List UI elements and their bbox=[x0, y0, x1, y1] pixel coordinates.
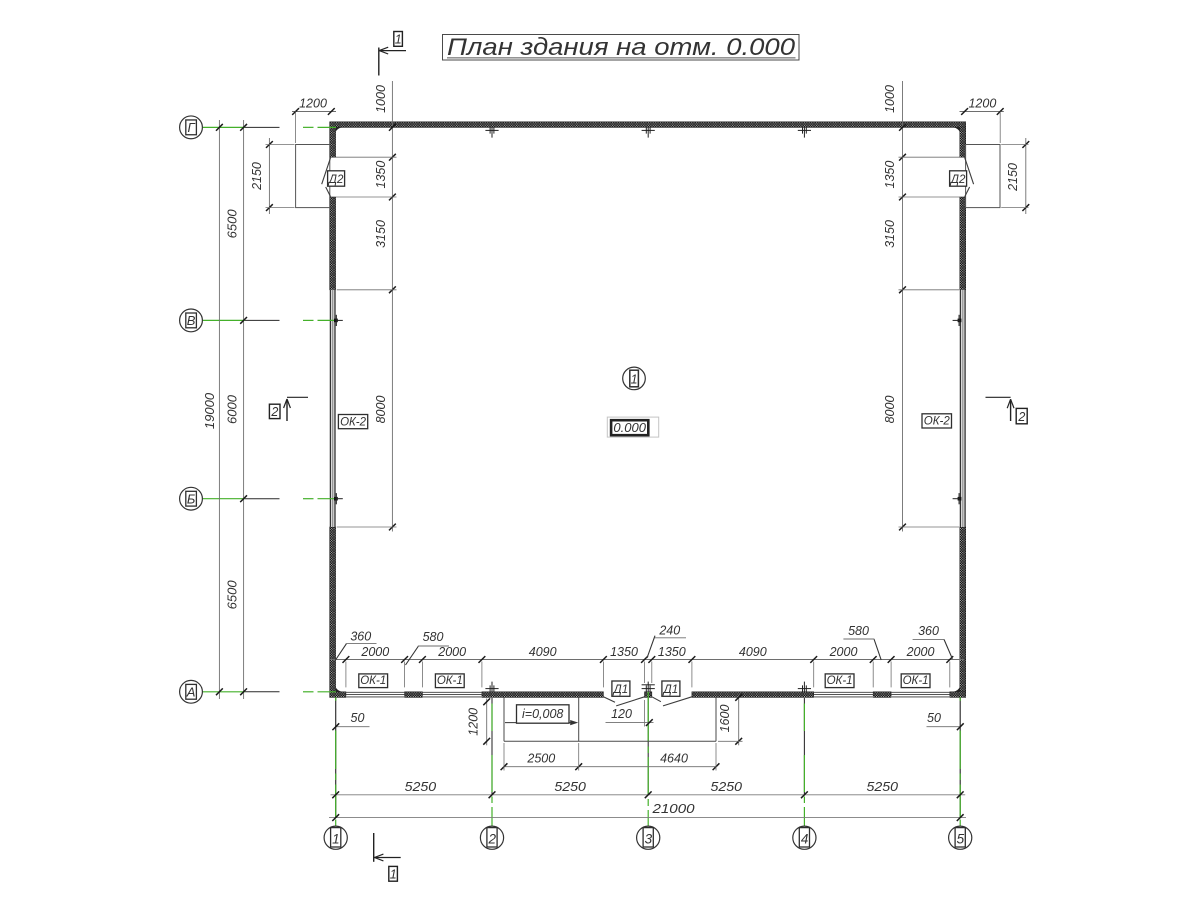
svg-text:4090: 4090 bbox=[529, 645, 557, 659]
svg-text:2: 2 bbox=[1017, 410, 1025, 424]
svg-text:2500: 2500 bbox=[526, 752, 555, 766]
svg-text:Г: Г bbox=[188, 120, 196, 135]
svg-text:360: 360 bbox=[918, 624, 939, 638]
svg-text:8000: 8000 bbox=[374, 396, 388, 424]
svg-text:i=0,008: i=0,008 bbox=[522, 707, 563, 721]
svg-text:1350: 1350 bbox=[658, 645, 686, 659]
svg-text:2000: 2000 bbox=[360, 645, 389, 659]
svg-text:3: 3 bbox=[645, 832, 653, 847]
svg-text:ОК-2: ОК-2 bbox=[924, 416, 951, 428]
svg-text:ОК-1: ОК-1 bbox=[437, 675, 463, 687]
svg-text:2: 2 bbox=[487, 832, 496, 847]
svg-text:0.000: 0.000 bbox=[613, 420, 646, 435]
svg-text:ОК-1: ОК-1 bbox=[360, 675, 386, 687]
svg-text:5250: 5250 bbox=[711, 779, 743, 794]
svg-text:1: 1 bbox=[390, 868, 397, 882]
svg-text:5250: 5250 bbox=[867, 779, 899, 794]
svg-text:5: 5 bbox=[957, 832, 965, 847]
svg-text:1000: 1000 bbox=[374, 85, 388, 113]
svg-text:Д1: Д1 bbox=[662, 684, 679, 696]
svg-text:1600: 1600 bbox=[718, 705, 732, 733]
svg-text:120: 120 bbox=[611, 707, 632, 721]
svg-text:5250: 5250 bbox=[405, 779, 437, 794]
svg-text:50: 50 bbox=[927, 711, 941, 725]
svg-text:3150: 3150 bbox=[883, 220, 897, 248]
svg-text:1350: 1350 bbox=[883, 161, 897, 189]
svg-text:3150: 3150 bbox=[374, 220, 388, 248]
svg-text:Д2: Д2 bbox=[949, 174, 966, 186]
svg-text:580: 580 bbox=[848, 624, 869, 638]
svg-text:Д1: Д1 bbox=[612, 684, 629, 696]
svg-text:2150: 2150 bbox=[250, 162, 264, 191]
svg-text:5250: 5250 bbox=[554, 779, 586, 794]
svg-text:360: 360 bbox=[350, 630, 371, 644]
svg-text:4: 4 bbox=[801, 832, 809, 847]
svg-text:А: А bbox=[186, 685, 196, 700]
svg-text:6000: 6000 bbox=[225, 394, 240, 424]
svg-text:2000: 2000 bbox=[829, 645, 858, 659]
svg-text:4090: 4090 bbox=[739, 645, 767, 659]
svg-text:8000: 8000 bbox=[883, 396, 897, 424]
svg-text:Б: Б bbox=[187, 492, 196, 507]
svg-text:План здания на отм. 0.000: План здания на отм. 0.000 bbox=[447, 34, 795, 61]
svg-text:1: 1 bbox=[631, 372, 638, 386]
svg-text:2150: 2150 bbox=[1006, 163, 1020, 192]
svg-text:6500: 6500 bbox=[225, 580, 240, 610]
svg-text:1: 1 bbox=[332, 832, 340, 847]
svg-text:ОК-1: ОК-1 bbox=[903, 675, 929, 687]
svg-text:240: 240 bbox=[658, 623, 680, 637]
svg-text:2: 2 bbox=[270, 405, 278, 419]
svg-text:4640: 4640 bbox=[660, 752, 688, 766]
svg-text:2000: 2000 bbox=[437, 645, 466, 659]
svg-text:2000: 2000 bbox=[906, 645, 935, 659]
svg-text:1200: 1200 bbox=[466, 708, 480, 736]
svg-text:ОК-1: ОК-1 bbox=[827, 675, 853, 687]
svg-text:1: 1 bbox=[395, 33, 402, 47]
svg-text:580: 580 bbox=[423, 630, 444, 644]
svg-text:21000: 21000 bbox=[651, 801, 695, 816]
svg-text:1200: 1200 bbox=[299, 97, 327, 111]
svg-text:6500: 6500 bbox=[225, 209, 240, 239]
svg-text:19000: 19000 bbox=[202, 392, 217, 429]
svg-text:50: 50 bbox=[351, 711, 365, 725]
svg-text:1350: 1350 bbox=[610, 645, 638, 659]
svg-text:ОК-2: ОК-2 bbox=[340, 416, 367, 428]
svg-text:В: В bbox=[187, 313, 196, 328]
svg-text:1350: 1350 bbox=[374, 161, 388, 189]
svg-text:1000: 1000 bbox=[883, 85, 897, 113]
svg-text:Д2: Д2 bbox=[327, 174, 344, 186]
svg-text:1200: 1200 bbox=[968, 97, 996, 111]
